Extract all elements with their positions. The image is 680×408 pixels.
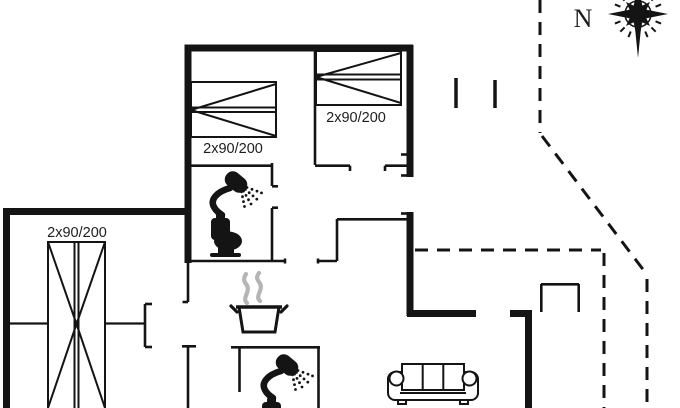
steam-icon <box>244 273 261 303</box>
floor-plan-canvas: N 2x90/200 2x90/200 2x90/200 <box>0 0 680 408</box>
bed-left-vertical <box>48 242 105 408</box>
bed-top-left <box>191 82 276 137</box>
shower-icon <box>264 351 314 398</box>
terrace-niche <box>541 284 579 312</box>
entrance-markers <box>456 78 495 108</box>
compass-rose-icon <box>608 0 668 58</box>
door-opening-bracket <box>145 304 152 347</box>
bed-size-label: 2x90/200 <box>326 110 386 126</box>
shower-icon <box>213 168 263 215</box>
compass-north-label: N <box>574 4 593 33</box>
sofa-icon <box>388 364 478 404</box>
toilet-icon <box>261 398 293 408</box>
floor-plan: N 2x90/200 2x90/200 2x90/200 <box>0 0 680 408</box>
bed-top-middle <box>316 51 401 105</box>
bed-size-label: 2x90/200 <box>203 141 263 157</box>
cooking-pot-icon <box>231 273 287 332</box>
bed-size-label: 2x90/200 <box>47 225 107 241</box>
toilet-icon <box>210 214 242 257</box>
